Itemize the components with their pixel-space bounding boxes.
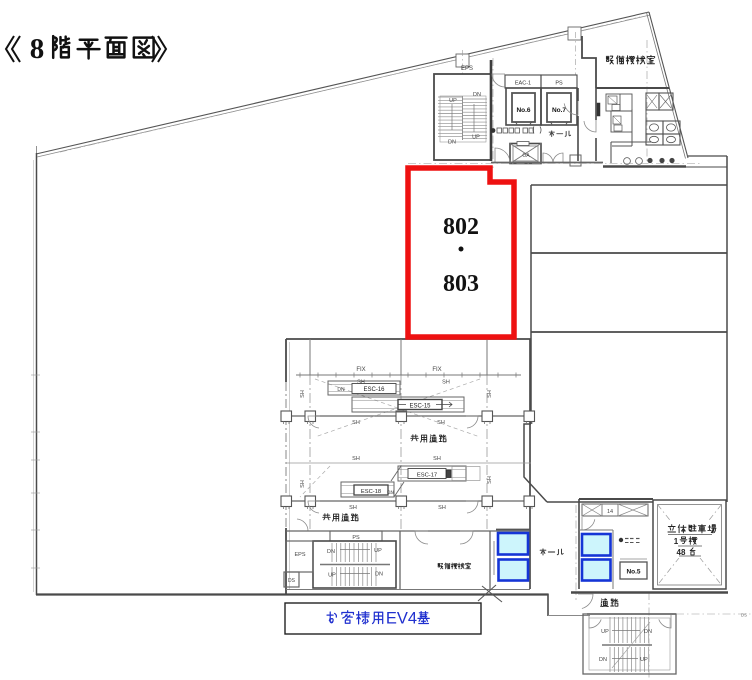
- svg-text:DN: DN: [599, 657, 607, 663]
- svg-text:DN: DN: [448, 140, 456, 146]
- svg-text:ESC-15: ESC-15: [409, 404, 431, 410]
- svg-text:DN: DN: [644, 629, 652, 635]
- svg-text:DS: DS: [741, 613, 747, 618]
- svg-text:SH: SH: [487, 390, 493, 398]
- svg-text:EV4: EV4: [386, 610, 417, 628]
- svg-text:UP: UP: [328, 573, 336, 579]
- svg-text:802: 802: [443, 214, 479, 240]
- svg-text:DS: DS: [288, 578, 296, 584]
- svg-text:SH: SH: [442, 380, 450, 386]
- svg-text:PS: PS: [555, 81, 563, 87]
- svg-text:DN: DN: [387, 490, 394, 496]
- svg-text:FIX: FIX: [432, 367, 441, 373]
- svg-text:8: 8: [30, 33, 45, 65]
- svg-text:UP: UP: [640, 657, 648, 663]
- svg-text:SH: SH: [433, 456, 441, 462]
- svg-text:803: 803: [443, 271, 479, 297]
- svg-text:UP: UP: [601, 629, 609, 635]
- svg-text:UP: UP: [472, 135, 480, 141]
- svg-text:ESC-16: ESC-16: [363, 387, 385, 393]
- svg-text:SH: SH: [300, 390, 306, 398]
- svg-text:PS: PS: [352, 535, 360, 541]
- svg-text:SH: SH: [352, 420, 360, 426]
- svg-text:SH: SH: [349, 505, 357, 511]
- svg-text:SH: SH: [352, 456, 360, 462]
- svg-text:EPS: EPS: [294, 552, 305, 558]
- svg-text:14: 14: [607, 509, 613, 515]
- svg-text:UP: UP: [449, 98, 457, 104]
- svg-text:FIX: FIX: [356, 367, 365, 373]
- svg-text:EPS: EPS: [461, 66, 473, 72]
- svg-text:No.6: No.6: [516, 107, 530, 114]
- svg-text:48: 48: [677, 548, 686, 557]
- svg-text:SH: SH: [438, 505, 446, 511]
- svg-text:No.7: No.7: [552, 107, 566, 114]
- svg-text:No.5: No.5: [626, 569, 640, 576]
- svg-text:DN: DN: [327, 549, 335, 555]
- svg-text:1: 1: [674, 537, 679, 546]
- svg-text:SH: SH: [487, 476, 493, 484]
- svg-text:DN: DN: [375, 572, 383, 578]
- svg-text:ESC-17: ESC-17: [417, 473, 437, 479]
- svg-text:DN: DN: [337, 387, 345, 393]
- svg-text:OA: OA: [522, 153, 530, 159]
- svg-text:ESC-18: ESC-18: [361, 489, 381, 495]
- svg-text:SH: SH: [300, 480, 306, 488]
- svg-text:UP: UP: [374, 548, 382, 554]
- svg-text:DN: DN: [473, 92, 481, 98]
- svg-text:EAC-1: EAC-1: [515, 81, 531, 87]
